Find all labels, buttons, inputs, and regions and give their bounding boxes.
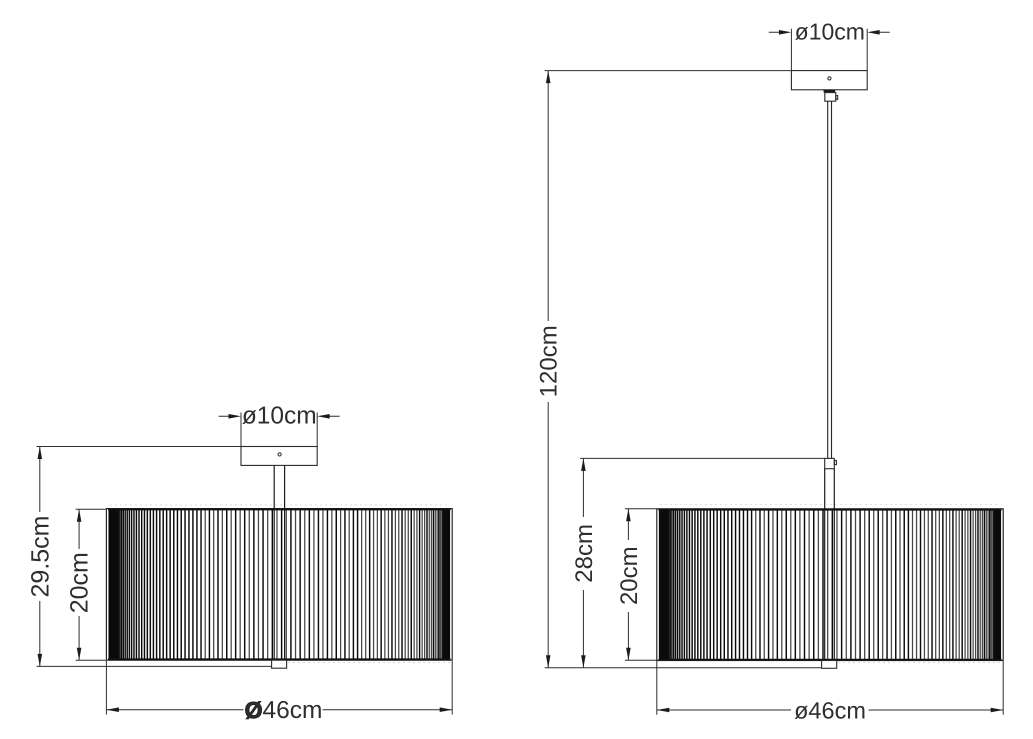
svg-text:20cm: 20cm [66, 552, 94, 613]
svg-text:20cm: 20cm [616, 546, 643, 605]
svg-text:ø10cm: ø10cm [242, 403, 317, 430]
svg-text:28cm: 28cm [571, 524, 598, 583]
svg-text:29.5cm: 29.5cm [26, 516, 54, 598]
svg-text:ø46cm: ø46cm [794, 697, 866, 723]
svg-text:Ø46cm: Ø46cm [245, 697, 323, 724]
svg-text:ø10cm: ø10cm [795, 19, 865, 45]
svg-text:120cm: 120cm [536, 325, 563, 397]
